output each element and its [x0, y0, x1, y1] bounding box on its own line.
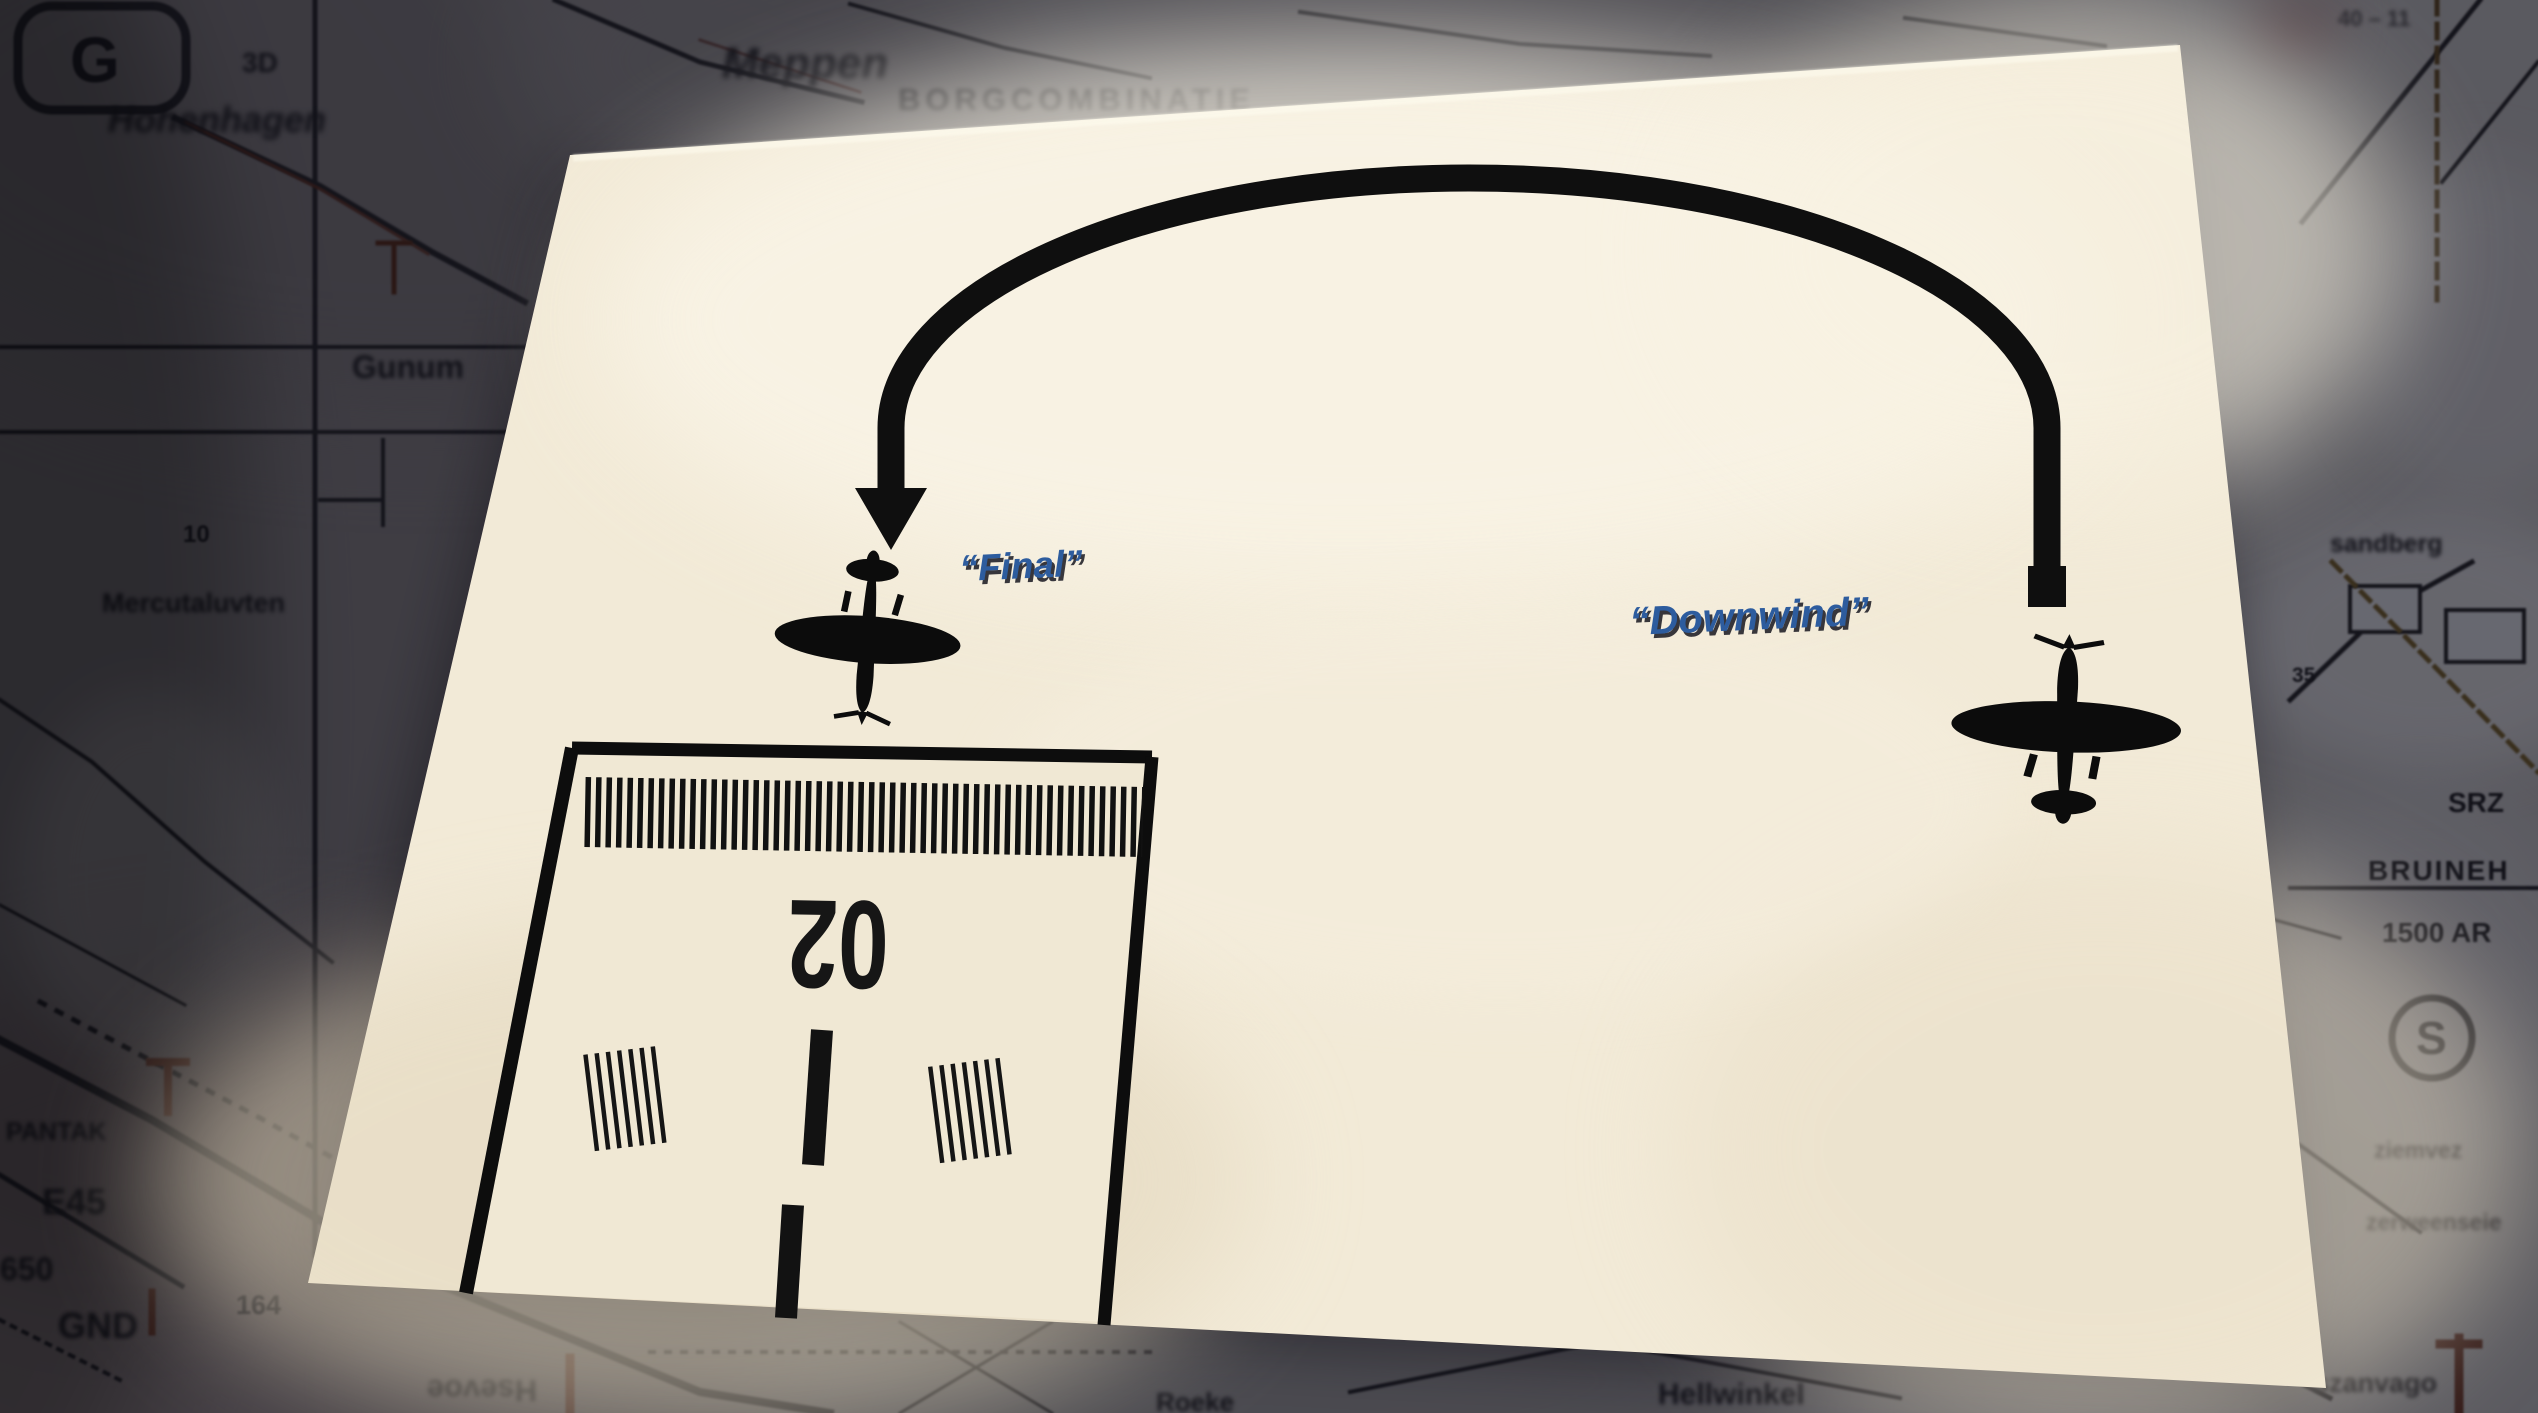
final-label: “Final”: [959, 543, 1085, 589]
screenshot-root: { "diagram": { "final_label": "“Final”",…: [0, 0, 2538, 1413]
runway-number: 02: [786, 873, 889, 1015]
centerline-dash-1: [813, 1030, 822, 1165]
runway-edge-top: [572, 748, 1152, 757]
centerline-dash-2: [786, 1205, 793, 1318]
runway: 02: [466, 748, 1152, 1325]
briefing-scene: G 3D Hohenhagen Meppen BORGCOMBINATIE Gu…: [0, 0, 2538, 1413]
arc-downwind-end: [2028, 566, 2066, 607]
